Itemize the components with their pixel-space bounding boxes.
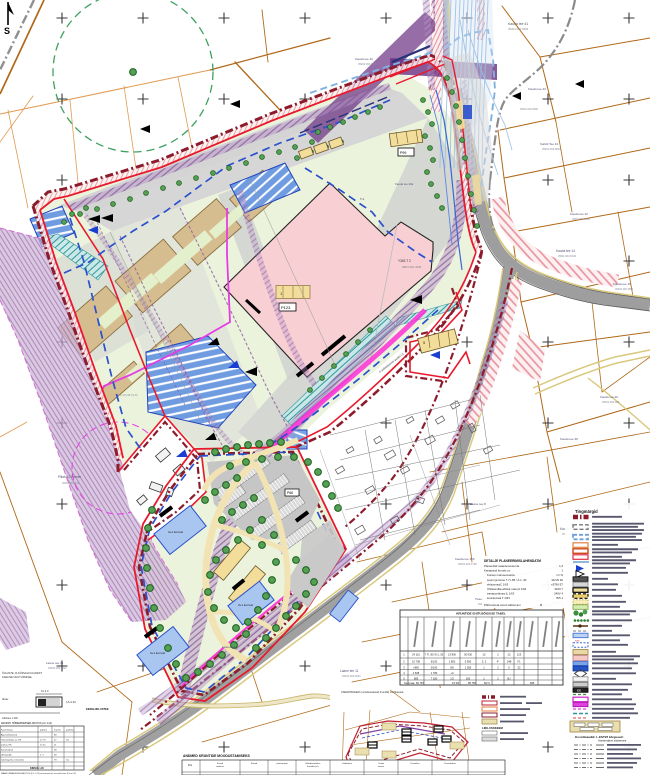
svg-text:685: 685 xyxy=(530,681,535,685)
svg-text:muhua 7/8: muhua 7/8 xyxy=(1,745,12,747)
svg-text:Kauda tee 14: Kauda tee 14 xyxy=(556,249,575,253)
svg-text:Kava lõnata: Kava lõnata xyxy=(1,729,13,732)
svg-text:Põhrooceta suuni tabtat arv: Põhrooceta suuni tabtat arv xyxy=(484,603,521,607)
svg-text:ehitusmaaC 1/63: ehitusmaaC 1/63 xyxy=(487,582,509,586)
svg-text:+5796 E7: +5796 E7 xyxy=(551,582,563,586)
svg-text:EE: EE xyxy=(577,689,581,693)
svg-text:35201:004:0021: 35201:004:0021 xyxy=(48,666,67,670)
svg-text:14B: 14B xyxy=(507,660,512,664)
svg-text:Planeerital maantesuuse Na: Planeerital maantesuuse Na xyxy=(484,564,520,568)
svg-text:4*: 4* xyxy=(497,660,499,664)
svg-text:Kauda tee 15: Kauda tee 15 xyxy=(613,282,631,286)
svg-text:p 4.8 (35-7)(-8): p 4.8 (35-7)(-8) xyxy=(120,393,138,397)
svg-text:15 3/0: 15 3/0 xyxy=(452,681,460,685)
svg-text:35201:08=1350: 35201:08=1350 xyxy=(615,287,634,291)
svg-text:Kavatasud krunds on: Kavatasud krunds on xyxy=(484,569,511,573)
svg-text:B/5 1: B/5 1 xyxy=(556,596,563,600)
svg-text:1 055: 1 055 xyxy=(465,666,472,670)
svg-text:Laanemaa: Laanemaa xyxy=(222,645,236,649)
svg-text:7 TI..85 /Ä.1..30: 7 TI..85 /Ä.1..30 xyxy=(425,653,444,657)
svg-text:KRUNTIDE EHITUSÕIGUSE TABEL: KRUNTIDE EHITUSÕIGUSE TABEL xyxy=(456,611,506,616)
svg-text:Kunser maruseceterta: Kunser maruseceterta xyxy=(487,573,515,577)
svg-text:1,2: 1,2 xyxy=(559,564,563,568)
svg-text:35201:004:126: 35201:004:126 xyxy=(62,481,80,485)
svg-text:P123: P123 xyxy=(281,305,291,310)
svg-text:Krundi: Krundi xyxy=(251,762,258,765)
svg-text:2 608: 2 608 xyxy=(413,671,420,675)
svg-text:T-1: T-1 xyxy=(360,197,365,201)
svg-text:marme: marme xyxy=(54,729,62,732)
svg-text:35t01:004:0040: 35t01:004:0040 xyxy=(558,254,577,258)
svg-text:Liidetakse: Liidetakse xyxy=(342,762,353,765)
svg-text:Tingmärgid: Tingmärgid xyxy=(575,509,598,514)
svg-text:krundist (sh,: krundist (sh, xyxy=(307,765,319,768)
svg-text:+860: +860 xyxy=(413,666,419,670)
svg-text:Kauda tee 40a: Kauda tee 40a xyxy=(395,182,414,186)
svg-text:34/1/5 92: 34/1/5 92 xyxy=(551,578,563,582)
svg-text:35201:004:1780: 35201:004:1780 xyxy=(458,562,477,566)
svg-text:sõidutee 1:100: sõidutee 1:100 xyxy=(2,717,18,720)
svg-text:Piilab 10 Farmer: Piilab 10 Farmer xyxy=(58,475,82,479)
svg-text:ARVESTI HÕBEMINIMISED ARUTUS (: ARVESTI HÕBEMINIMISED ARUTUS (LV: 141) xyxy=(1,722,52,725)
svg-text:1/ 7ta: 1/ 7ta xyxy=(40,744,46,747)
svg-text:3520t 004 0600: 3520t 004 0600 xyxy=(572,217,591,221)
svg-text:Teostatakse: Teostatakse xyxy=(444,762,456,765)
svg-text:P66: P66 xyxy=(287,491,293,495)
svg-text:Crude: Crude xyxy=(378,762,385,765)
svg-text:35201:004:0810: 35201:004:0810 xyxy=(542,147,561,151)
svg-text:3, 2: 3, 2 xyxy=(482,660,487,664)
svg-text:3,5+1,5m: 3,5+1,5m xyxy=(66,701,76,704)
svg-text:82 787: 82 787 xyxy=(416,681,424,685)
svg-text:240V 4: 240V 4 xyxy=(554,592,563,596)
svg-text:Moodustatakse: Moodustatakse xyxy=(306,762,322,765)
svg-text:Kauda tee 41: Kauda tee 41 xyxy=(508,22,528,26)
svg-text:Laane tee 8: Laane tee 8 xyxy=(470,502,486,506)
svg-text:6/0: 6/0 xyxy=(450,666,454,670)
svg-text:Laane tee 11: Laane tee 11 xyxy=(46,661,64,665)
svg-text:Kauda tee 40: Kauda tee 40 xyxy=(355,57,373,61)
svg-text:Tehueeehdua ua 7/8: Tehueeehdua ua 7/8 xyxy=(1,740,22,742)
svg-text:685: 685 xyxy=(414,677,419,681)
svg-text:parkime: parkime xyxy=(66,729,75,732)
svg-text:Amsterdami süsteemis: Amsterdami süsteemis xyxy=(598,739,627,743)
svg-text:suomi ja ümse 7.7t..85 / Ä.1..: suomi ja ümse 7.7t..85 / Ä.1..30 xyxy=(487,578,527,582)
svg-text:tänav: tänav xyxy=(2,697,9,701)
svg-text:KERGLIIKLUSTEE: KERGLIIKLUSTEE xyxy=(86,707,109,711)
svg-text:P99: P99 xyxy=(400,151,406,155)
svg-text:looimismaa T 1/63: looimismaa T 1/63 xyxy=(487,596,510,600)
svg-text:Ärja kvõndusmal: Ärja kvõndusmal xyxy=(1,734,18,737)
svg-text:35201:004:0021: 35201:004:0021 xyxy=(342,674,361,678)
svg-text:Kauda tee 43: Kauda tee 43 xyxy=(528,87,546,91)
svg-text:3+1 korrust: 3+1 korrust xyxy=(150,651,165,655)
svg-text:8/2 6: 8/2 6 xyxy=(484,681,490,685)
svg-text:1O: 1O xyxy=(450,677,453,681)
svg-text:6/100: 6/100 xyxy=(431,660,438,664)
svg-text:35201:001:0493: 35201:001:0493 xyxy=(508,27,529,31)
svg-text:Ühiskondik: Ühiskondik xyxy=(1,754,13,757)
svg-text:Jalurhayvela, teilusmiks: Jalurhayvela, teilusmiks xyxy=(1,759,25,762)
svg-text:85 755: 85 755 xyxy=(468,681,476,685)
svg-text:7 180: 7 180 xyxy=(431,677,438,681)
svg-text:1/ 7:8: 1/ 7:8 xyxy=(40,740,46,742)
svg-text:123: 123 xyxy=(517,653,522,657)
svg-text:30 000: 30 000 xyxy=(464,653,472,657)
svg-text:Krundi: Krundi xyxy=(217,762,224,765)
svg-text:1 800: 1 800 xyxy=(449,660,456,664)
svg-text:1C: 1C xyxy=(507,653,510,657)
svg-text:Kauda tee 33b: Kauda tee 33b xyxy=(455,557,475,561)
svg-text:Kuisehalevd: Kuisehalevd xyxy=(1,750,14,752)
svg-text:35201:004:0400: 35201:004:0400 xyxy=(358,62,377,66)
svg-text:KL 3.0: KL 3.0 xyxy=(41,689,49,693)
svg-text:3160 7: 3160 7 xyxy=(554,587,563,591)
svg-text:transpordimaa (L 1/63: transpordimaa (L 1/63 xyxy=(487,592,515,596)
svg-text:Kauda tee 38: Kauda tee 38 xyxy=(560,437,578,441)
svg-text:B: B xyxy=(540,603,542,607)
svg-text:Y363 T 2: Y363 T 2 xyxy=(398,259,411,263)
svg-text:0/100: 0/100 xyxy=(431,666,438,670)
svg-text:planeeritud: planeeritud xyxy=(277,762,289,765)
svg-text:suurus: suurus xyxy=(378,765,385,768)
svg-text:DETALJE PLANEERIMISLAHENDATM: DETALJE PLANEERIMISLAHENDATM xyxy=(484,559,541,563)
svg-text:xxx: xxx xyxy=(575,639,580,643)
svg-text:3+1 korrust: 3+1 korrust xyxy=(168,530,183,534)
svg-text:10 708: 10 708 xyxy=(412,660,420,664)
svg-text:Kauda tee 39: Kauda tee 39 xyxy=(600,395,618,399)
svg-text:Laane tee 11: Laane tee 11 xyxy=(340,669,359,673)
svg-text:3+1 korrust: 3+1 korrust xyxy=(238,603,253,607)
svg-text:KAELISE ÜHUTUSMISEL: KAELISE ÜHUTUSMISEL xyxy=(2,675,33,679)
svg-text:LIIKLUSSKEEM: LIIKLUSSKEEM xyxy=(482,726,503,730)
svg-text:ANDMED KRUNTIDE MOODUSTAMISEKS: ANDMED KRUNTIDE MOODUSTAMISEKS xyxy=(183,754,251,758)
svg-text:aadress: aadress xyxy=(216,765,225,768)
svg-text:35201:004:0600: 35201:004:0600 xyxy=(520,108,539,111)
svg-text:13 800: 13 800 xyxy=(448,653,456,657)
svg-text:Kabild Tee 42: Kabild Tee 42 xyxy=(540,142,558,146)
svg-text:Summaa: Summaa xyxy=(404,681,415,685)
svg-text:Lisatakse: Lisatakse xyxy=(410,762,420,765)
svg-text:35201:004:008: 35201:004:008 xyxy=(602,400,620,404)
svg-text:pakime: pakime xyxy=(40,730,48,732)
svg-text:24 115: 24 115 xyxy=(412,653,420,657)
svg-text:1 780: 1 780 xyxy=(431,671,438,675)
svg-text:S: S xyxy=(4,26,10,36)
svg-text:KINNUL LIN: KINNUL LIN xyxy=(30,767,44,770)
svg-text:3520 t 004- 0045: 3520 t 004- 0045 xyxy=(402,266,422,269)
svg-text:Kauda tee 42: Kauda tee 42 xyxy=(570,212,588,216)
svg-text:200: 200 xyxy=(466,677,471,681)
svg-text:5 900: 5 900 xyxy=(465,660,472,664)
svg-text:Ühiskondlia ahitisa maa (A 1/6: Ühiskondlia ahitisa maa (A 1/63 xyxy=(487,587,527,591)
svg-text:m² %: m² % xyxy=(556,573,563,577)
